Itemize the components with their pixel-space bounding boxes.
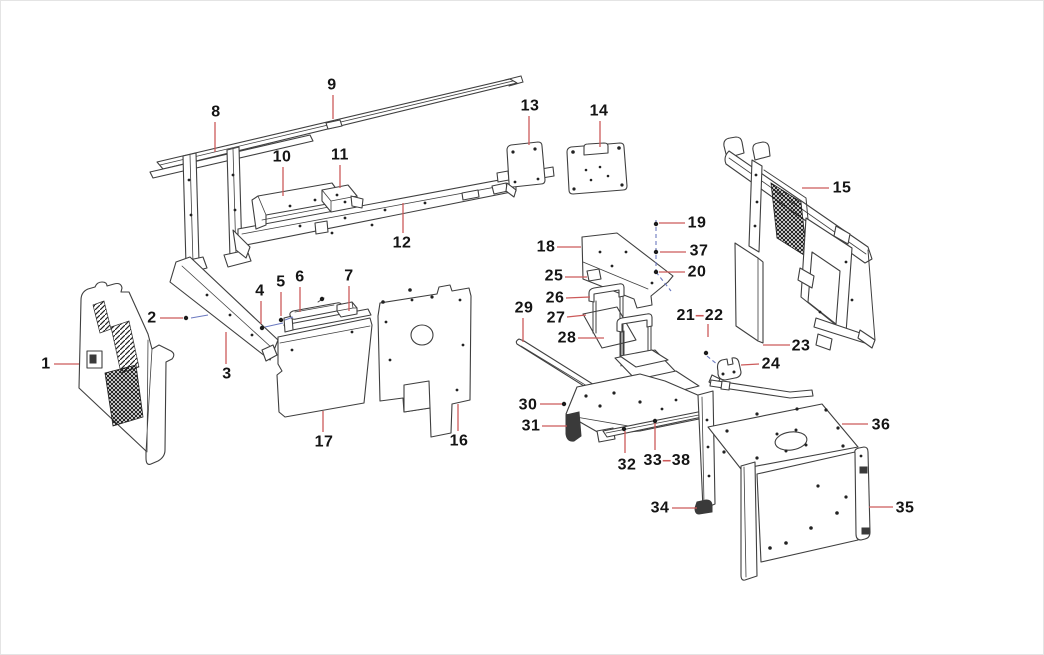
leader-line [741, 364, 759, 365]
callout-label: 13 [521, 98, 540, 115]
callout-17: 17 [315, 411, 334, 451]
part-35-front [757, 452, 858, 562]
part-3-rail [170, 257, 278, 361]
callout-label: 31 [522, 418, 541, 435]
fastener-dot [654, 270, 658, 274]
fastener-dot [260, 326, 264, 330]
construction-line [707, 356, 718, 365]
box-assembly [695, 380, 870, 580]
callout-label: 25 [545, 268, 564, 285]
part-17-panel [277, 309, 372, 417]
callout-label: 14 [590, 103, 609, 120]
callout-label: 19 [688, 215, 707, 232]
fastener-dot [320, 297, 324, 301]
callout-label: 7 [344, 268, 353, 285]
callout-30: 30 [519, 397, 562, 414]
callout-29: 29 [515, 300, 534, 343]
fastener-dot [279, 318, 283, 322]
callout-18: 18 [537, 239, 581, 256]
callout-label: 16 [450, 433, 469, 450]
callout-2: 2 [147, 310, 183, 327]
callout-label: 20 [688, 264, 707, 281]
callout-5: 5 [276, 274, 285, 317]
callout-1: 1 [41, 356, 79, 373]
callout-35: 35 [869, 500, 914, 517]
callout-33-38: 33–38 [644, 423, 691, 469]
part-18-cover [582, 233, 673, 308]
part-23-panel [735, 243, 763, 343]
part-25-slot [587, 269, 601, 281]
callout-label: 5 [276, 274, 285, 291]
fastener-dot [704, 351, 708, 355]
callout-label: 32 [618, 457, 637, 474]
callout-14: 14 [590, 103, 609, 148]
callout-label: 24 [762, 356, 781, 373]
callout-label: 10 [273, 149, 292, 166]
callout-24: 24 [741, 356, 780, 373]
floor-assembly [566, 350, 707, 442]
fastener-dot [622, 427, 626, 431]
parts-diagram-svg: 12345678910111213141516171819372021–2223… [0, 0, 1044, 655]
callout-3: 3 [222, 332, 231, 383]
callout-label: 34 [651, 500, 670, 517]
callout-label: 11 [331, 147, 349, 164]
callout-label: 36 [872, 417, 891, 434]
part-28-bracket [615, 314, 676, 381]
callout-27: 27 [547, 310, 586, 327]
part-7-bracket [337, 302, 357, 317]
callout-label: 23 [792, 338, 811, 355]
fastener-dot [653, 419, 657, 423]
callout-15: 15 [802, 180, 851, 197]
callout-label: 6 [295, 269, 304, 286]
callout-label: 33–38 [644, 452, 691, 469]
callout-label: 27 [547, 310, 566, 327]
part-14-plate [567, 143, 627, 194]
callout-13: 13 [521, 98, 540, 146]
callout-6: 6 [295, 269, 304, 313]
part-34-side [698, 391, 715, 509]
fastener-dot [654, 250, 658, 254]
callout-21-22: 21–22 [677, 307, 724, 338]
diagram-canvas: 12345678910111213141516171819372021–2223… [0, 0, 1044, 655]
callout-label: 21–22 [677, 307, 724, 324]
construction-line [191, 315, 208, 318]
callout-9: 9 [327, 77, 336, 120]
callout-label: 15 [833, 180, 852, 197]
callout-34: 34 [651, 500, 697, 517]
callout-label: 29 [515, 300, 534, 317]
part-27-plate [583, 307, 636, 348]
callout-10: 10 [273, 149, 292, 197]
part-1-panel [79, 282, 174, 464]
callout-label: 4 [255, 283, 264, 300]
fastener-dot [184, 316, 188, 320]
callout-label: 37 [690, 243, 709, 260]
fastener-dot [654, 222, 658, 226]
callout-label: 28 [558, 330, 577, 347]
callout-label: 1 [41, 356, 50, 373]
callout-32: 32 [618, 431, 637, 474]
callout-8: 8 [211, 104, 220, 153]
callout-37: 37 [660, 243, 708, 260]
callout-label: 18 [537, 239, 556, 256]
callout-label: 8 [211, 104, 220, 121]
callout-label: 9 [327, 77, 336, 94]
callout-label: 2 [147, 310, 156, 327]
callout-19: 19 [659, 215, 706, 232]
leader-line [566, 297, 590, 298]
leader-line [567, 315, 586, 317]
part-31-bracket [566, 412, 581, 441]
part-16-panel [378, 285, 471, 437]
callout-25: 25 [545, 268, 587, 285]
callout-4: 4 [255, 283, 264, 325]
callout-label: 3 [222, 366, 231, 383]
callout-label: 35 [896, 500, 915, 517]
callout-11: 11 [331, 147, 349, 189]
callout-label: 17 [315, 434, 334, 451]
construction-line [265, 323, 283, 327]
fastener-dot [562, 402, 566, 406]
callout-label: 26 [546, 290, 565, 307]
callout-23: 23 [763, 338, 810, 355]
callout-31: 31 [522, 418, 567, 435]
callout-16: 16 [450, 404, 469, 450]
callout-26: 26 [546, 290, 590, 307]
part-12-rail [233, 178, 516, 258]
callout-label: 30 [519, 397, 538, 414]
callout-36: 36 [842, 417, 890, 434]
callout-label: 12 [393, 235, 412, 252]
